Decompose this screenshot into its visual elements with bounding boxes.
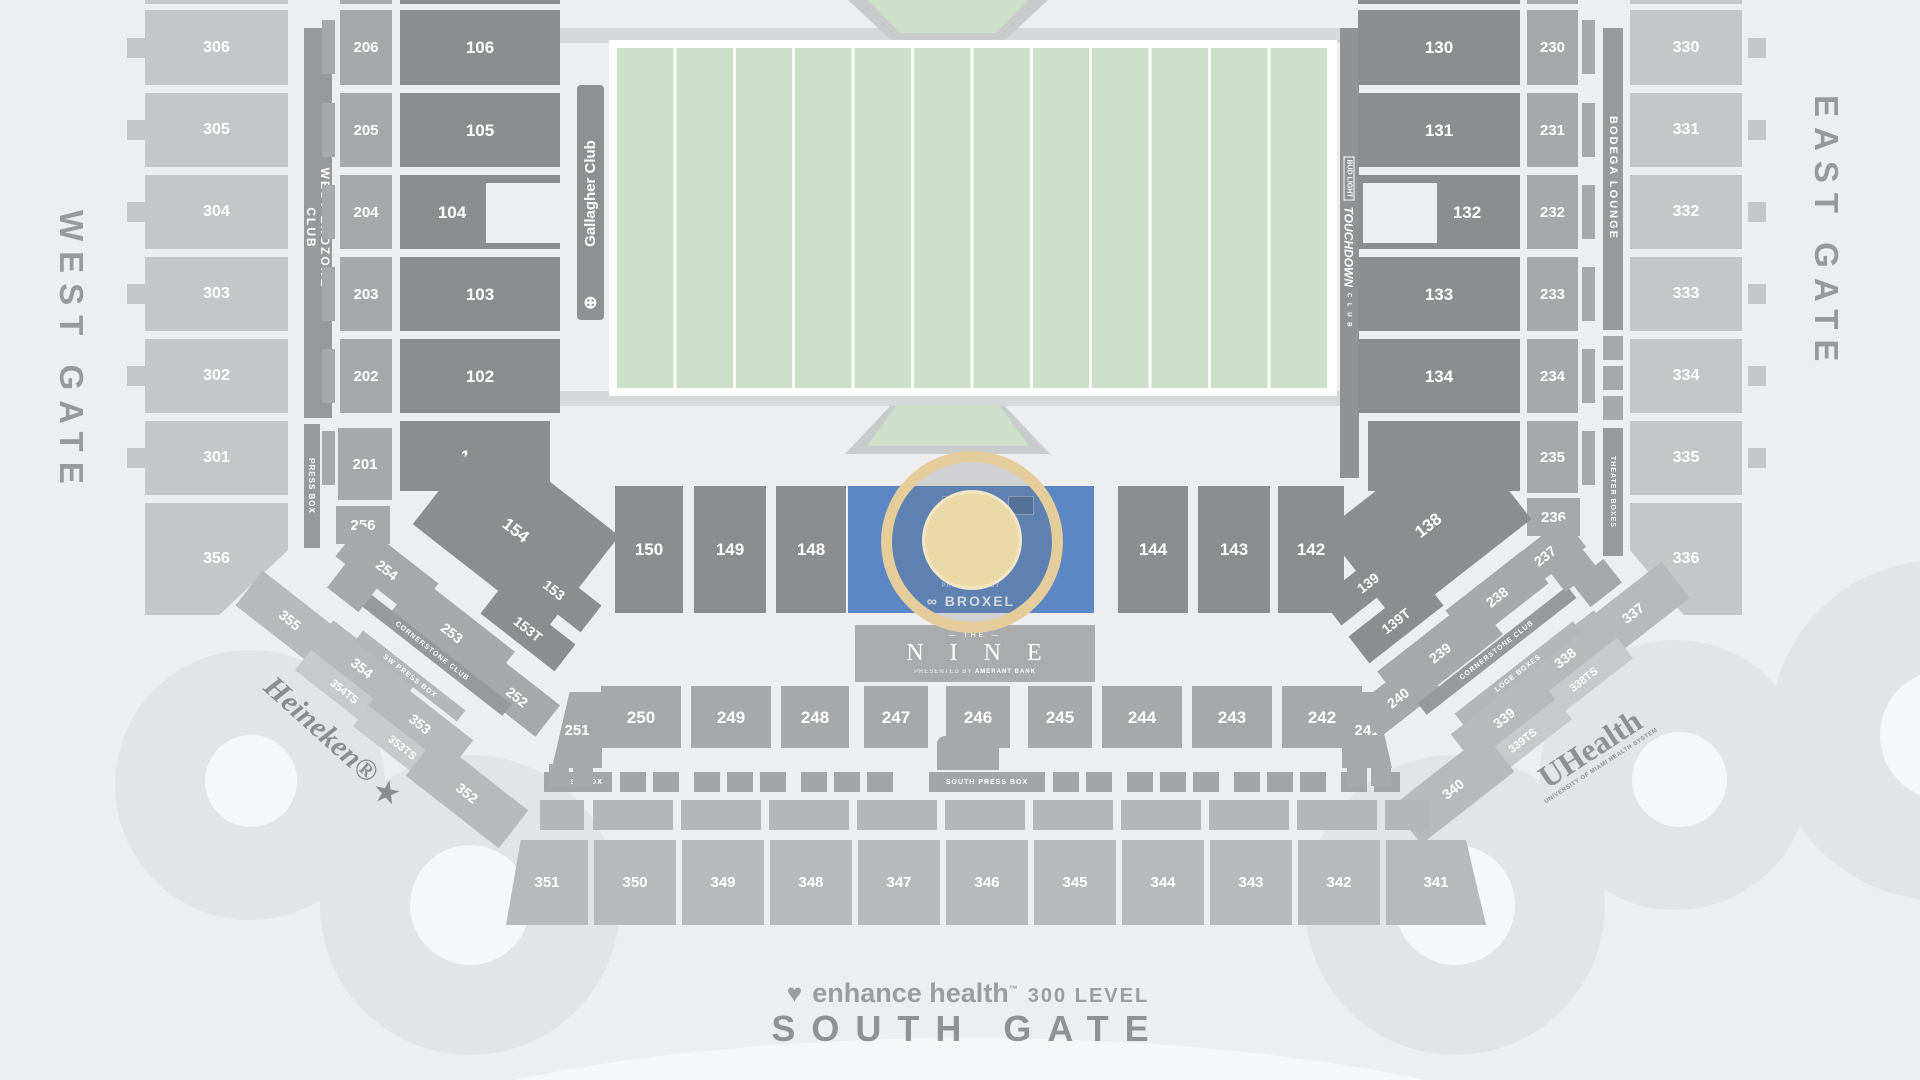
section-label: 342 xyxy=(1326,875,1351,890)
section-305[interactable]: 305 xyxy=(145,93,288,167)
map-box xyxy=(322,267,335,321)
map-box xyxy=(486,183,560,243)
map-box xyxy=(127,448,145,468)
section-label: SOUTH PRESS BOX xyxy=(946,779,1028,786)
section-148[interactable]: 148 xyxy=(776,486,846,613)
section-352[interactable]: 352 xyxy=(406,738,529,848)
section-label: 249 xyxy=(717,709,745,726)
section-label: 345 xyxy=(1062,875,1087,890)
section-333[interactable]: 333 xyxy=(1630,257,1742,331)
section-label: 305 xyxy=(203,122,230,138)
section-205[interactable]: 205 xyxy=(340,93,392,167)
section-label: 302 xyxy=(203,368,230,384)
section-label: 336 xyxy=(1673,551,1700,567)
section-250[interactable]: 250 xyxy=(601,686,681,748)
section-label: 153T xyxy=(511,614,545,645)
section-332[interactable]: 332 xyxy=(1630,175,1742,249)
section-350[interactable]: 350 xyxy=(594,840,676,925)
map-box xyxy=(1297,800,1377,830)
section-label: 243 xyxy=(1218,709,1246,726)
section-232[interactable]: 232 xyxy=(1527,175,1578,249)
section-label: 331 xyxy=(1673,122,1700,138)
section-label: 349 xyxy=(710,875,735,890)
south-footer: ♥ enhance health™ 300 LEVEL xyxy=(787,978,1149,1009)
section-335[interactable]: 335 xyxy=(1630,421,1742,495)
map-box xyxy=(322,349,335,403)
map-box xyxy=(1234,772,1260,792)
section-label: 339 xyxy=(1490,705,1517,730)
section-235[interactable]: 235 xyxy=(1527,421,1578,493)
section-149[interactable]: 149 xyxy=(694,486,766,613)
map-box xyxy=(1371,764,1391,786)
section-label: 253 xyxy=(438,620,465,645)
map-box xyxy=(1121,800,1201,830)
section-label: 102 xyxy=(466,368,494,385)
map-box xyxy=(1582,20,1595,74)
map-box xyxy=(945,800,1025,830)
section-label: 153 xyxy=(540,577,567,602)
section-label: 233 xyxy=(1540,287,1565,302)
map-box xyxy=(1086,772,1112,792)
section-label: 105 xyxy=(466,122,494,139)
section-label: 104 xyxy=(438,204,466,221)
map-box xyxy=(127,120,145,140)
map-box xyxy=(937,736,999,770)
section-102[interactable]: 102 xyxy=(400,339,560,413)
section-106[interactable]: 106 xyxy=(400,10,560,85)
section-347[interactable]: 347 xyxy=(858,840,940,925)
section-244[interactable]: 244 xyxy=(1102,686,1182,748)
section-342[interactable]: 342 xyxy=(1298,840,1380,925)
map-box xyxy=(322,20,335,74)
section-label: 245 xyxy=(1046,709,1074,726)
section-label: 251 xyxy=(564,723,589,738)
section-label: 337 xyxy=(1619,600,1646,625)
section-label: 332 xyxy=(1673,204,1700,220)
section-202[interactable]: 202 xyxy=(340,339,392,413)
section-143[interactable]: 143 xyxy=(1198,486,1270,613)
map-box xyxy=(1582,349,1595,403)
section-label: 201 xyxy=(352,457,377,472)
map-box xyxy=(1582,103,1595,157)
map-box xyxy=(1358,0,1520,4)
map-box xyxy=(1603,336,1623,360)
map-box xyxy=(1127,772,1153,792)
section-label: 350 xyxy=(622,875,647,890)
map-box xyxy=(834,772,860,792)
section-label: 139T xyxy=(1379,606,1413,637)
map-box xyxy=(540,800,584,830)
section-243[interactable]: 243 xyxy=(1192,686,1272,748)
map-box xyxy=(322,431,335,485)
map-box xyxy=(1053,772,1079,792)
map-box xyxy=(857,800,937,830)
map-box xyxy=(127,366,145,386)
level-300-label: 300 LEVEL xyxy=(1028,985,1149,1008)
section-label: 230 xyxy=(1540,40,1565,55)
section-134[interactable]: 134 xyxy=(1358,339,1520,413)
map-box xyxy=(1347,764,1367,786)
map-box xyxy=(400,0,560,4)
section-label: 352 xyxy=(453,780,480,805)
section-245[interactable]: 245 xyxy=(1028,686,1092,748)
map-box xyxy=(1582,431,1595,485)
section-303[interactable]: 303 xyxy=(145,257,288,331)
section-label: 148 xyxy=(797,541,825,558)
enhance-health-heart-icon: ♥ xyxy=(787,978,802,1009)
section-label: 335 xyxy=(1673,450,1700,466)
section-label: 133 xyxy=(1425,286,1453,303)
map-box xyxy=(573,764,593,786)
section-105[interactable]: 105 xyxy=(400,93,560,167)
section-label: 346 xyxy=(974,875,999,890)
map-box xyxy=(694,772,720,792)
section-330[interactable]: 330 xyxy=(1630,10,1742,85)
map-box xyxy=(1748,38,1766,58)
section-203[interactable]: 203 xyxy=(340,257,392,331)
map-box xyxy=(760,772,786,792)
section-label: 353 xyxy=(406,711,433,736)
section-label: 301 xyxy=(203,450,230,466)
section-label: 356 xyxy=(203,551,230,567)
map-box xyxy=(1193,772,1219,792)
map-box xyxy=(867,772,893,792)
section-150[interactable]: 150 xyxy=(615,486,683,613)
section-306[interactable]: 306 xyxy=(145,10,288,85)
section-345[interactable]: 345 xyxy=(1034,840,1116,925)
map-box xyxy=(1748,366,1766,386)
map-box xyxy=(145,0,288,4)
map-box xyxy=(322,185,335,239)
section-233[interactable]: 233 xyxy=(1527,257,1578,331)
section-label: 149 xyxy=(716,541,744,558)
section-334[interactable]: 334 xyxy=(1630,339,1742,413)
section-346[interactable]: 346 xyxy=(946,840,1028,925)
section-label: 333 xyxy=(1673,286,1700,302)
section-label: 306 xyxy=(203,40,230,56)
section-label: 144 xyxy=(1139,541,1167,558)
map-box xyxy=(1033,800,1113,830)
map-box xyxy=(1385,800,1429,830)
map-box xyxy=(340,0,392,4)
section-label: 248 xyxy=(801,709,829,726)
map-box xyxy=(127,284,145,304)
map-box xyxy=(127,38,145,58)
section-label: 246 xyxy=(964,709,992,726)
section-label: 354 xyxy=(348,655,375,680)
section-204[interactable]: 204 xyxy=(340,175,392,249)
map-box xyxy=(1603,396,1623,420)
section-label: 139 xyxy=(1354,570,1381,595)
section-label: 347 xyxy=(886,875,911,890)
section-247[interactable]: 247 xyxy=(864,686,928,748)
section-331[interactable]: 331 xyxy=(1630,93,1742,167)
map-box xyxy=(1748,284,1766,304)
map-box xyxy=(1630,0,1742,4)
section-301[interactable]: 301 xyxy=(145,421,288,495)
section-348[interactable]: 348 xyxy=(770,840,852,925)
section-label: 202 xyxy=(353,369,378,384)
section-label: 239 xyxy=(1426,640,1453,665)
section-label: 203 xyxy=(353,287,378,302)
map-box xyxy=(127,202,145,222)
map-box xyxy=(1527,0,1578,4)
section-label: 343 xyxy=(1238,875,1263,890)
section-144[interactable]: 144 xyxy=(1118,486,1188,613)
section-label: 250 xyxy=(627,709,655,726)
map-box xyxy=(801,772,827,792)
map-box xyxy=(681,800,761,830)
south-press-box-label[interactable]: SOUTH PRESS BOX xyxy=(929,772,1045,792)
section-label: 238 xyxy=(1483,584,1510,609)
map-box xyxy=(1748,202,1766,222)
section-label: 231 xyxy=(1540,123,1565,138)
section-label: 205 xyxy=(353,123,378,138)
section-label: 244 xyxy=(1128,709,1156,726)
section-label: 106 xyxy=(466,39,494,56)
section-label: 254 xyxy=(373,557,400,582)
section-label: 247 xyxy=(882,709,910,726)
map-box xyxy=(1748,120,1766,140)
section-label: 131 xyxy=(1425,122,1453,139)
map-box xyxy=(1748,448,1766,468)
section-label: 154 xyxy=(500,515,533,546)
section-label: 143 xyxy=(1220,541,1248,558)
section-label: 150 xyxy=(635,541,663,558)
section-label: 242 xyxy=(1308,709,1336,726)
section-351[interactable]: 351 xyxy=(506,840,588,925)
section-349[interactable]: 349 xyxy=(682,840,764,925)
section-206[interactable]: 206 xyxy=(340,10,392,85)
section-label: 206 xyxy=(353,40,378,55)
enhance-health-logo: enhance health™ xyxy=(812,978,1018,1009)
section-label: 348 xyxy=(798,875,823,890)
section-304[interactable]: 304 xyxy=(145,175,288,249)
section-label: 304 xyxy=(203,204,230,220)
section-label: 355 xyxy=(276,607,303,632)
section-230[interactable]: 230 xyxy=(1527,10,1578,85)
section-343[interactable]: 343 xyxy=(1210,840,1292,925)
section-label: 103 xyxy=(466,286,494,303)
section-231[interactable]: 231 xyxy=(1527,93,1578,167)
map-box xyxy=(593,800,673,830)
section-label: 240 xyxy=(1384,685,1411,710)
map-box xyxy=(1582,185,1595,239)
map-box xyxy=(1209,800,1289,830)
section-label: 130 xyxy=(1425,39,1453,56)
section-344[interactable]: 344 xyxy=(1122,840,1204,925)
section-label: 235 xyxy=(1540,450,1565,465)
section-label: 351 xyxy=(534,875,559,890)
section-248[interactable]: 248 xyxy=(781,686,849,748)
section-302[interactable]: 302 xyxy=(145,339,288,413)
map-box xyxy=(322,103,335,157)
section-label: 341 xyxy=(1423,875,1448,890)
map-box xyxy=(1300,772,1326,792)
section-label: 204 xyxy=(353,205,378,220)
map-box xyxy=(1267,772,1293,792)
section-234[interactable]: 234 xyxy=(1527,339,1578,413)
section-103[interactable]: 103 xyxy=(400,257,560,331)
map-box xyxy=(1363,183,1437,243)
section-130[interactable]: 130 xyxy=(1358,10,1520,85)
section-label: 330 xyxy=(1673,40,1700,56)
map-box xyxy=(620,772,646,792)
section-label: 334 xyxy=(1673,368,1700,384)
section-label: 340 xyxy=(1439,776,1466,801)
section-341[interactable]: 341 xyxy=(1386,840,1486,925)
section-label: 132 xyxy=(1453,204,1481,221)
section-label: 142 xyxy=(1297,541,1325,558)
section-label: 232 xyxy=(1540,205,1565,220)
section-label: 303 xyxy=(203,286,230,302)
section-133[interactable]: 133 xyxy=(1358,257,1520,331)
map-box xyxy=(769,800,849,830)
map-box xyxy=(549,764,569,786)
map-box xyxy=(1160,772,1186,792)
section-131[interactable]: 131 xyxy=(1358,93,1520,167)
section-201[interactable]: 201 xyxy=(338,428,392,500)
map-box xyxy=(727,772,753,792)
section-251[interactable]: 251 xyxy=(552,692,602,768)
section-label: 138 xyxy=(1412,510,1445,541)
section-label: 344 xyxy=(1150,875,1175,890)
map-box xyxy=(1582,267,1595,321)
section-249[interactable]: 249 xyxy=(691,686,771,748)
section-label: 234 xyxy=(1540,369,1565,384)
map-box xyxy=(653,772,679,792)
section-label: 134 xyxy=(1425,368,1453,385)
map-box xyxy=(1603,366,1623,390)
stadium-seat-map: { "palette":{"bg":"#edeef0","level100":"… xyxy=(0,0,1920,1080)
